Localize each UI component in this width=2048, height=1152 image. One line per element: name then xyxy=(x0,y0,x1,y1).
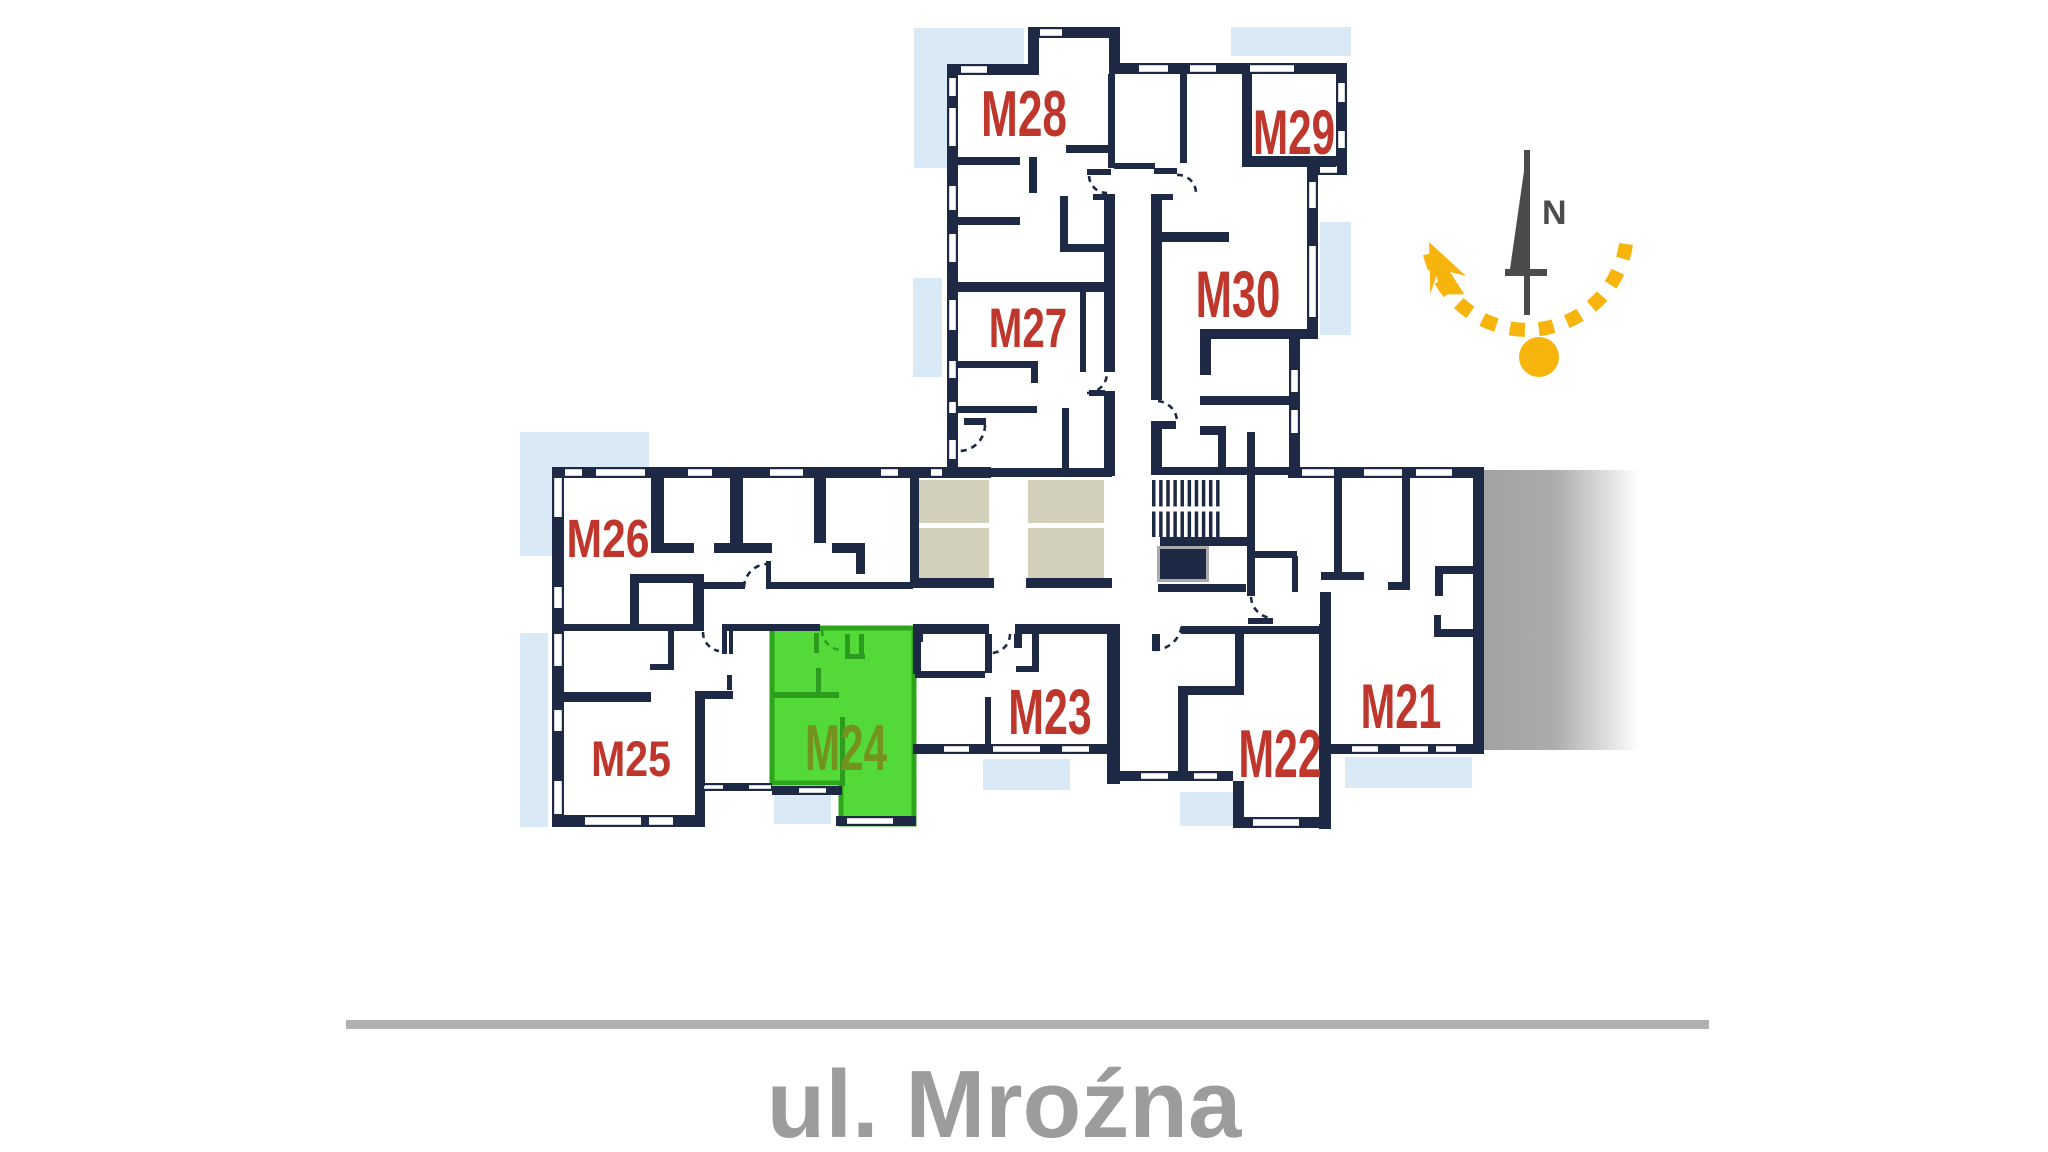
svg-text:N: N xyxy=(1542,194,1567,232)
svg-text:M23: M23 xyxy=(1008,676,1091,748)
svg-text:ul. Mroźna: ul. Mroźna xyxy=(767,1051,1242,1152)
svg-text:M28: M28 xyxy=(981,78,1067,151)
svg-text:M29: M29 xyxy=(1253,98,1335,168)
svg-text:M26: M26 xyxy=(567,509,650,569)
svg-text:M25: M25 xyxy=(591,731,671,787)
svg-text:M24: M24 xyxy=(805,711,888,785)
svg-text:M21: M21 xyxy=(1361,673,1442,743)
svg-text:M27: M27 xyxy=(989,298,1067,360)
svg-text:M30: M30 xyxy=(1196,257,1281,331)
svg-text:M22: M22 xyxy=(1238,717,1321,792)
